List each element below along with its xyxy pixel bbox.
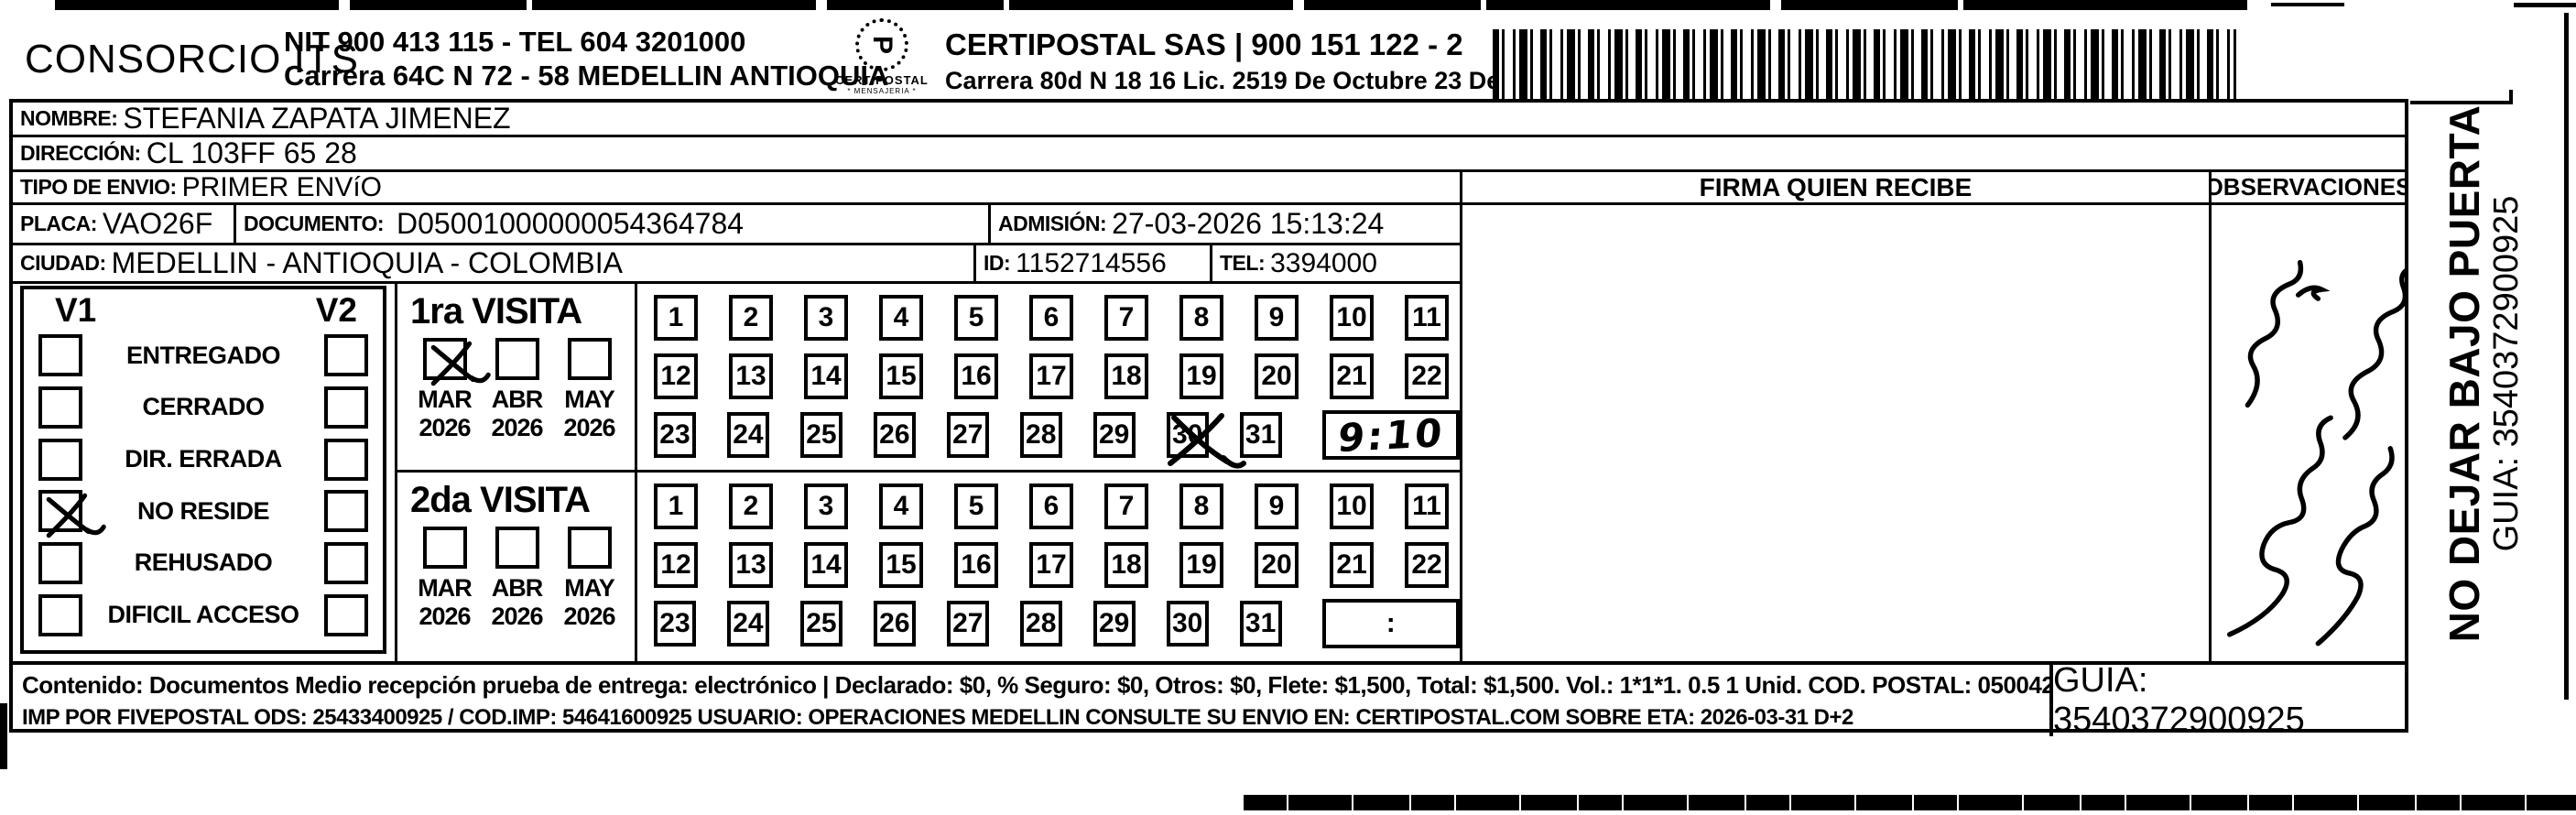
month-year: 2026 (553, 603, 625, 631)
logo-caption: CERTIPOSTAL (831, 73, 932, 87)
month-year: 2026 (408, 414, 481, 442)
day-row: 1213141516171819202122 (654, 542, 1460, 588)
visita2-day-19[interactable]: 19 (1179, 542, 1223, 588)
visita1-day-17[interactable]: 17 (1029, 353, 1073, 399)
scan-edge-mark (0, 703, 7, 769)
visita1-day-28[interactable]: 28 (1020, 412, 1062, 458)
documento-value: D05001000000054364784 (389, 207, 744, 241)
handwritten-time: 9:10 (1335, 409, 1446, 460)
logo-subcaption: * MENSAJERIA * (831, 87, 932, 95)
status-option-label: DIR. ERRADA (82, 445, 324, 473)
visita1-day-29[interactable]: 29 (1093, 412, 1136, 458)
visita1-day-3[interactable]: 3 (804, 295, 848, 341)
visita1-day-15[interactable]: 15 (879, 353, 923, 399)
month-column: MAR2026 (408, 338, 481, 442)
visita1-day-5[interactable]: 5 (954, 295, 998, 341)
status-option-label: NO RESIDE (82, 497, 324, 526)
observaciones-header-label: OBSERVACIONES (2209, 173, 2405, 201)
ciudad-label: CIUDAD: (13, 251, 112, 276)
visita2-day-5[interactable]: 5 (954, 484, 998, 529)
direccion-value: CL 103FF 65 28 (147, 137, 357, 170)
visita1-day-10[interactable]: 10 (1330, 295, 1374, 341)
month-year: 2026 (481, 414, 553, 442)
visita1-day-24[interactable]: 24 (727, 412, 769, 458)
month-checkbox-may[interactable] (568, 527, 612, 569)
visita2-day-31[interactable]: 31 (1240, 601, 1282, 647)
month-checkbox-abr[interactable] (495, 338, 539, 380)
status-option-row: ENTREGADO (38, 334, 368, 376)
firma-signature-area[interactable] (1460, 205, 2209, 661)
certipostal-logo-icon: P (855, 18, 908, 71)
visita1-month-checkboxes: MAR2026ABR2026MAY2026 (397, 338, 635, 442)
observaciones-handwriting (2212, 205, 2405, 661)
visita2-day-23[interactable]: 23 (654, 601, 696, 647)
firma-header: FIRMA QUIEN RECIBE (1460, 172, 2209, 205)
visita2-day-4[interactable]: 4 (879, 484, 923, 529)
tipo-envio-label: TIPO DE ENVIO: (13, 175, 182, 200)
company-address-line: Carrera 64C N 72 - 58 MEDELLIN ANTIOQUIA (284, 60, 888, 93)
visita1-day-7[interactable]: 7 (1104, 295, 1148, 341)
month-column: MAY2026 (553, 527, 625, 631)
header: CONSORCIO ITS NIT 900 413 115 - TEL 604 … (0, 11, 2576, 99)
nombre-row: NOMBRE: STEFANIA ZAPATA JIMENEZ (13, 103, 2405, 137)
visita2-day-2[interactable]: 2 (729, 484, 773, 529)
admision-label: ADMISIÓN: (991, 212, 1112, 236)
visita2-day-15[interactable]: 15 (879, 542, 923, 588)
visita2-day-10[interactable]: 10 (1330, 484, 1374, 529)
status-option-label: ENTREGADO (82, 342, 324, 370)
visita2-day-26[interactable]: 26 (874, 601, 916, 647)
placa-value: VAO26F (103, 207, 212, 241)
visita1-day-22[interactable]: 22 (1405, 353, 1449, 399)
visita2-months-cell: 2da VISITA MAR2026ABR2026MAY2026 (397, 473, 637, 661)
footer-info-cell: Contenido: Documentos Medio recepción pr… (13, 661, 2053, 736)
v1-checkbox-dir-errada[interactable] (38, 439, 82, 481)
visita1-day-grid: 1234567891011121314151617181920212223242… (637, 284, 1460, 473)
day-row: 1234567891011 (654, 295, 1460, 341)
nombre-value: STEFANIA ZAPATA JIMENEZ (123, 103, 510, 136)
visita1-day-20[interactable]: 20 (1255, 353, 1299, 399)
visita1-day-11[interactable]: 11 (1405, 295, 1449, 341)
side-warning-text: NO DEJAR BAJO PUERTA (2441, 105, 2488, 643)
guia-number: GUIA: 3540372900925 (2053, 661, 2405, 736)
visita1-day-21[interactable]: 21 (1330, 353, 1374, 399)
visita2-time-box[interactable]: : (1322, 599, 1460, 648)
day-row: 232425262728293031: (654, 601, 1460, 648)
documento-label: DOCUMENTO: (236, 212, 389, 236)
month-column: ABR2026 (481, 527, 553, 631)
visita2-day-13[interactable]: 13 (729, 542, 773, 588)
visita2-day-21[interactable]: 21 (1330, 542, 1374, 588)
visita2-day-28[interactable]: 28 (1020, 601, 1062, 647)
day-row: 1213141516171819202122 (654, 353, 1460, 399)
status-panel: V1 V2 ENTREGADOCERRADODIR. ERRADANO RESI… (13, 284, 397, 661)
status-option-row: REHUSADO (38, 542, 368, 584)
visita2-day-24[interactable]: 24 (727, 601, 769, 647)
visita2-day-grid: 1234567891011121314151617181920212223242… (637, 473, 1460, 661)
id-value: 1152714556 (1016, 248, 1167, 279)
month-year: 2026 (553, 414, 625, 442)
month-column: MAY2026 (553, 338, 625, 442)
month-checkbox-may[interactable] (568, 338, 612, 380)
observaciones-area[interactable] (2209, 205, 2405, 661)
status-option-row: NO RESIDE (38, 490, 368, 532)
side-guia-number: GUIA: 3540372900925 (2487, 105, 2526, 643)
postal-delivery-label: CONSORCIO ITS NIT 900 413 115 - TEL 604 … (0, 0, 2576, 815)
visita2-day-14[interactable]: 14 (804, 542, 848, 588)
visita1-day-4[interactable]: 4 (879, 295, 923, 341)
company-contact-block: NIT 900 413 115 - TEL 604 3201000 Carrer… (284, 26, 888, 92)
visit1-column-header: V1 (55, 291, 96, 330)
v2-checkbox-dificil-acceso[interactable] (324, 594, 368, 636)
v2-checkbox-no-reside[interactable] (324, 490, 368, 532)
company-nit-line: NIT 900 413 115 - TEL 604 3201000 (284, 26, 888, 60)
visita1-day-6[interactable]: 6 (1029, 295, 1073, 341)
visita2-day-12[interactable]: 12 (654, 542, 698, 588)
visita1-day-26[interactable]: 26 (874, 412, 916, 458)
handwritten-x-mark (37, 488, 103, 545)
visita2-day-25[interactable]: 25 (800, 601, 842, 647)
visita2-day-7[interactable]: 7 (1104, 484, 1148, 529)
delivery-form: NOMBRE: STEFANIA ZAPATA JIMENEZ DIRECCIÓ… (9, 99, 2408, 733)
admision-cell: ADMISIÓN: 27-03-2026 15:13:24 (991, 205, 1460, 245)
status-option-row: CERRADO (38, 386, 368, 429)
v1-checkbox-dificil-acceso[interactable] (38, 594, 82, 636)
v1-checkbox-cerrado[interactable] (38, 386, 82, 429)
visita1-day-25[interactable]: 25 (800, 412, 842, 458)
status-option-label: REHUSADO (82, 549, 324, 577)
status-options: ENTREGADOCERRADODIR. ERRADANO RESIDEREHU… (24, 330, 383, 650)
visita1-day-19[interactable]: 19 (1179, 353, 1223, 399)
month-label: ABR (481, 386, 553, 414)
v2-checkbox-cerrado[interactable] (324, 386, 368, 429)
visita1-title: 1ra VISITA (397, 284, 635, 332)
placa-label: PLACA: (13, 212, 103, 236)
status-option-row: DIR. ERRADA (38, 439, 368, 481)
month-column: MAR2026 (408, 527, 481, 631)
ciudad-value: MEDELLIN - ANTIOQUIA - COLOMBIA (112, 246, 623, 280)
logo-glyph: P (866, 36, 897, 54)
postal-operator-address: Carrera 80d N 18 16 Lic. 2519 De Octubre… (945, 67, 1562, 96)
status-panel-header: V1 V2 (24, 289, 383, 330)
placa-cell: PLACA: VAO26F (13, 205, 236, 245)
month-label: MAR (408, 574, 481, 603)
visita1-day-9[interactable]: 9 (1255, 295, 1299, 341)
month-column: ABR2026 (481, 338, 553, 442)
nombre-label: NOMBRE: (13, 106, 123, 131)
visita1-day-1[interactable]: 1 (654, 295, 698, 341)
visita2-day-6[interactable]: 6 (1029, 484, 1073, 529)
side-strip: NO DEJAR BAJO PUERTA GUIA: 3540372900925 (2441, 105, 2526, 643)
visita2-month-checkboxes: MAR2026ABR2026MAY2026 (397, 527, 635, 631)
v1-checkbox-no-reside[interactable] (38, 490, 82, 532)
visita2-day-20[interactable]: 20 (1255, 542, 1299, 588)
visita2-day-16[interactable]: 16 (954, 542, 998, 588)
month-checkbox-mar[interactable] (423, 338, 467, 380)
status-option-label: CERRADO (82, 393, 324, 421)
tracking-barcode (1493, 29, 2236, 99)
observaciones-header: OBSERVACIONES (2209, 172, 2405, 205)
visita2-day-8[interactable]: 8 (1179, 484, 1223, 529)
month-label: MAY (553, 386, 625, 414)
tel-cell: TEL: 3394000 (1212, 245, 1460, 284)
status-option-row: DIFICIL ACCESO (38, 594, 368, 636)
v2-checkbox-rehusado[interactable] (324, 542, 368, 584)
label-right-edge (2564, 13, 2569, 700)
status-panel-box: V1 V2 ENTREGADOCERRADODIR. ERRADANO RESI… (20, 286, 386, 654)
handwritten-x-mark (421, 336, 487, 393)
visita1-day-12[interactable]: 12 (654, 353, 698, 399)
month-year: 2026 (408, 603, 481, 631)
visita1-day-16[interactable]: 16 (954, 353, 998, 399)
visita2-title: 2da VISITA (397, 473, 635, 521)
month-label: ABR (481, 574, 553, 603)
visita2-day-3[interactable]: 3 (804, 484, 848, 529)
certipostal-logo: P CERTIPOSTAL * MENSAJERIA * (831, 18, 932, 95)
id-label: ID: (976, 251, 1016, 276)
postal-operator-name: CERTIPOSTAL SAS | 900 151 122 - 2 (945, 27, 1562, 63)
tel-label: TEL: (1212, 251, 1270, 276)
visita1-day-30[interactable]: 30 (1167, 412, 1209, 458)
firma-header-label: FIRMA QUIEN RECIBE (1700, 173, 1973, 202)
month-checkbox-mar[interactable] (423, 527, 467, 569)
bottom-barcode-remnant (1244, 795, 2576, 810)
v1-checkbox-rehusado[interactable] (38, 542, 82, 584)
documento-cell: DOCUMENTO: D05001000000054364784 (236, 205, 991, 245)
day-row: 2324252627282930319:10 (654, 412, 1460, 460)
visita1-months-cell: 1ra VISITA MAR2026ABR2026MAY2026 (397, 284, 637, 473)
postal-operator-block: CERTIPOSTAL SAS | 900 151 122 - 2 Carrer… (945, 27, 1562, 96)
id-cell: ID: 1152714556 (976, 245, 1212, 284)
status-option-label: DIFICIL ACCESO (82, 601, 324, 629)
visita1-day-13[interactable]: 13 (729, 353, 773, 399)
admision-value: 27-03-2026 15:13:24 (1112, 207, 1384, 241)
visita2-day-1[interactable]: 1 (654, 484, 698, 529)
visita2-day-9[interactable]: 9 (1255, 484, 1299, 529)
visita2-day-29[interactable]: 29 (1093, 601, 1136, 647)
scan-edge-dash (2271, 3, 2344, 6)
v2-checkbox-entregado[interactable] (324, 334, 368, 376)
footer-content-line: Contenido: Documentos Medio recepción pr… (22, 671, 2053, 700)
visit2-column-header: V2 (316, 291, 357, 330)
month-label: MAY (553, 574, 625, 603)
visita1-day-14[interactable]: 14 (804, 353, 848, 399)
direccion-row: DIRECCIÓN: CL 103FF 65 28 (13, 137, 2405, 172)
visita1-day-8[interactable]: 8 (1179, 295, 1223, 341)
visita1-time-box[interactable]: 9:10 (1322, 410, 1460, 460)
visita1-day-31[interactable]: 31 (1240, 412, 1282, 458)
v1-checkbox-entregado[interactable] (38, 334, 82, 376)
tel-value: 3394000 (1270, 248, 1377, 279)
visita2-day-17[interactable]: 17 (1029, 542, 1073, 588)
tipo-envio-value: PRIMER ENVíO (182, 172, 382, 203)
ciudad-cell: CIUDAD: MEDELLIN - ANTIOQUIA - COLOMBIA (13, 245, 976, 284)
footer-imp-line: IMP POR FIVEPOSTAL ODS: 25433400925 / CO… (22, 705, 1853, 731)
direccion-label: DIRECCIÓN: (13, 141, 147, 166)
visita2-day-27[interactable]: 27 (947, 601, 989, 647)
visita1-day-18[interactable]: 18 (1104, 353, 1148, 399)
month-year: 2026 (481, 603, 553, 631)
v2-checkbox-dir-errada[interactable] (324, 439, 368, 481)
visita2-day-22[interactable]: 22 (1405, 542, 1449, 588)
visita1-day-27[interactable]: 27 (947, 412, 989, 458)
footer-guia-cell: GUIA: 3540372900925 (2053, 661, 2405, 736)
visita1-day-23[interactable]: 23 (654, 412, 696, 458)
tipo-envio-cell: TIPO DE ENVIO: PRIMER ENVíO (13, 172, 1460, 205)
visita2-day-18[interactable]: 18 (1104, 542, 1148, 588)
month-checkbox-abr[interactable] (495, 527, 539, 569)
handwritten-day-cross (1161, 410, 1240, 473)
scan-edge-dash (2514, 3, 2576, 7)
visita2-day-11[interactable]: 11 (1405, 484, 1449, 529)
day-row: 1234567891011 (654, 484, 1460, 529)
scan-edge-strip (55, 0, 2251, 10)
visita2-day-30[interactable]: 30 (1167, 601, 1209, 647)
visita1-day-2[interactable]: 2 (729, 295, 773, 341)
